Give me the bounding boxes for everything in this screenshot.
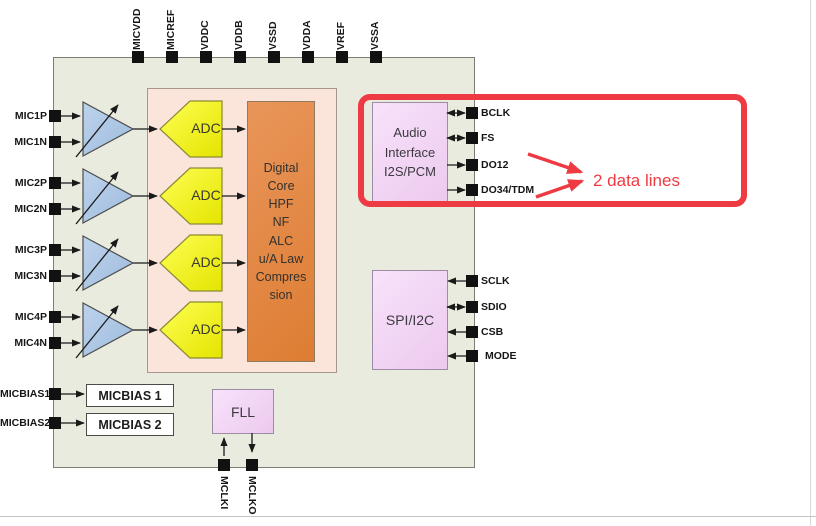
pin-micbias1 xyxy=(49,388,61,400)
pin-label-vdda: VDDA xyxy=(301,6,314,50)
annotation-text: 2 data lines xyxy=(593,171,680,191)
pin-micbias2 xyxy=(49,417,61,429)
pin-vddb xyxy=(234,51,246,63)
pin-vddc xyxy=(200,51,212,63)
adc1-label: ADC xyxy=(190,120,222,136)
pin-vref xyxy=(336,51,348,63)
pin-csb xyxy=(466,326,478,338)
pin-micvdd xyxy=(132,51,144,63)
pin-label-mclki: MCLKI xyxy=(217,476,230,518)
pin-sdio xyxy=(466,301,478,313)
adc4-label: ADC xyxy=(190,321,222,337)
pin-label-vddc: VDDC xyxy=(199,6,212,50)
pin-label-mode: MODE xyxy=(485,350,517,363)
pin-label-vssa: VSSA xyxy=(369,6,382,50)
pin-label-vref: VREF xyxy=(335,6,348,50)
pin-mic2p xyxy=(49,177,61,189)
pin-mic1p xyxy=(49,110,61,122)
amp3-triangle xyxy=(83,236,133,290)
amp1-triangle xyxy=(83,102,133,156)
annotation-highlight-box xyxy=(358,94,747,207)
pin-label-mic2p: MIC2P xyxy=(0,177,47,190)
pin-label-csb: CSB xyxy=(481,326,503,339)
pin-mic1n xyxy=(49,136,61,148)
pin-mic4n xyxy=(49,337,61,349)
pin-label-micbias2: MICBIAS2 xyxy=(0,417,47,430)
adc2-label: ADC xyxy=(190,187,222,203)
pin-mclki xyxy=(218,459,230,471)
pin-label-mic4p: MIC4P xyxy=(0,311,47,324)
amp2-triangle xyxy=(83,169,133,223)
pin-label-sclk: SCLK xyxy=(481,275,510,288)
pin-label-mic3n: MIC3N xyxy=(0,270,47,283)
pin-label-vssd: VSSD xyxy=(267,6,280,50)
pin-label-micbias1: MICBIAS1 xyxy=(0,388,47,401)
pin-label-mic2n: MIC2N xyxy=(0,203,47,216)
diagram-canvas: Digital Core HPF NF ALC u/A Law Compres … xyxy=(0,0,816,526)
pin-mic4p xyxy=(49,311,61,323)
pin-label-sdio: SDIO xyxy=(481,301,507,314)
wire-layer xyxy=(0,0,816,526)
pin-sclk xyxy=(466,275,478,287)
pin-label-mic1p: MIC1P xyxy=(0,110,47,123)
pin-mode xyxy=(466,350,478,362)
pin-mic2n xyxy=(49,203,61,215)
amp4-triangle xyxy=(83,303,133,357)
pin-vssa xyxy=(370,51,382,63)
pin-label-mic4n: MIC4N xyxy=(0,337,47,350)
pin-vdda xyxy=(302,51,314,63)
pin-label-micvdd: MICVDD xyxy=(131,6,144,50)
pin-mic3n xyxy=(49,270,61,282)
pin-mic3p xyxy=(49,244,61,256)
pin-vssd xyxy=(268,51,280,63)
adc3-label: ADC xyxy=(190,254,222,270)
pin-mclko xyxy=(246,459,258,471)
pin-label-mic3p: MIC3P xyxy=(0,244,47,257)
pin-label-micref: MICREF xyxy=(165,6,178,50)
pin-label-vddb: VDDB xyxy=(233,6,246,50)
pin-label-mclko: MCLKO xyxy=(245,476,258,518)
pin-label-mic1n: MIC1N xyxy=(0,136,47,149)
pin-micref xyxy=(166,51,178,63)
